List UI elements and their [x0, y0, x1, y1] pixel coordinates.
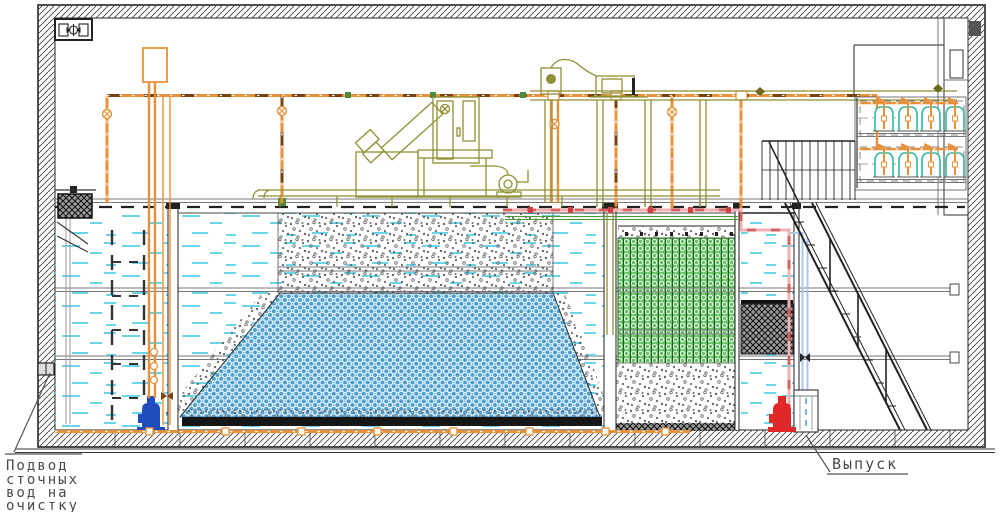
biofilter-bottom-gravel [607, 363, 737, 423]
ground-baseline [15, 449, 995, 453]
aeration-manifold-bar [182, 417, 602, 426]
inlet-penetration [38, 363, 54, 375]
outlet-label-text: Выпуск [832, 455, 898, 473]
drawing-canvas: Подвод сточных вод на очистку Выпуск [0, 0, 1000, 512]
pipe-valve [278, 107, 287, 116]
gravel-bed [278, 213, 553, 293]
basket-screen [58, 194, 92, 218]
biofilter-top-gravel [618, 226, 737, 238]
biofilter-green-media [618, 238, 737, 363]
biofilter-chamber [607, 226, 737, 431]
tie-bar-plate [950, 352, 959, 363]
right-wall-hatch [968, 18, 985, 430]
inlet-label-text: Подвод сточных вод на очистку [6, 458, 89, 512]
pipe-valve [103, 110, 112, 119]
feed-tank [143, 48, 167, 82]
wall-label-plate [969, 21, 981, 36]
door-panel [950, 50, 963, 78]
pipe-valve [668, 108, 677, 117]
roof-wall-hatch [38, 5, 985, 18]
ventilation-fan-icon [55, 19, 92, 40]
gravel-under-media [185, 409, 597, 417]
dark-media-strip [610, 423, 737, 431]
dark-filter-block [741, 304, 793, 354]
tie-bar-plate [950, 284, 959, 295]
